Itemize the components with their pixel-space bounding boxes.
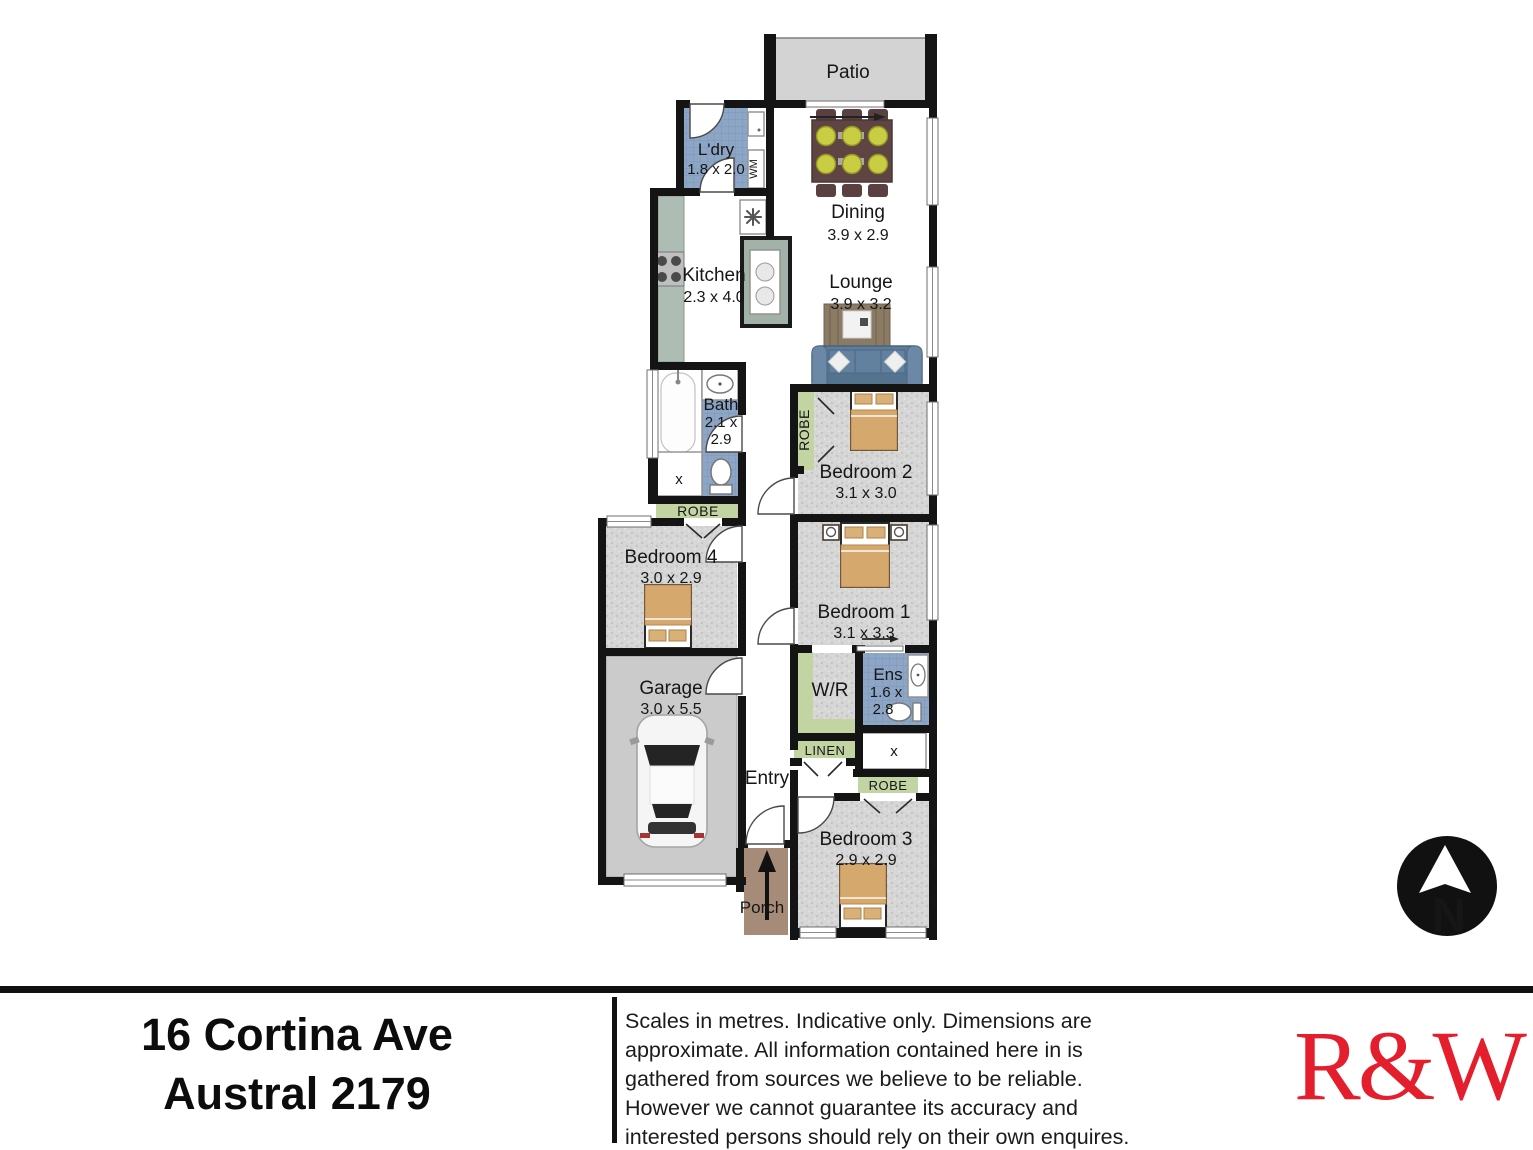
label-robe-bedroom4: ROBE (677, 503, 719, 519)
dims-lounge: 3.9 x 3.2 (830, 296, 891, 313)
disclaimer-line: interested persons should rely on their … (625, 1123, 1129, 1150)
ens-sink-icon (908, 655, 928, 697)
dims-garage: 3.0 x 5.5 (640, 701, 701, 718)
label-patio: Patio (826, 62, 869, 83)
dims-bedroom1: 3.1 x 3.3 (833, 625, 894, 642)
dims-ldry: 1.8 x 2.0 (687, 161, 745, 178)
window-bath (647, 370, 658, 458)
dims-bath-2: 2.9 (711, 431, 732, 448)
patio-wall-left (764, 34, 776, 104)
bed-icon-bedroom2 (851, 390, 897, 450)
floor-plan: WM x (0, 0, 1533, 1150)
address-line2: Austral 2179 (82, 1064, 512, 1123)
disclaimer-line: However we cannot guarantee its accuracy… (625, 1094, 1129, 1123)
label-dining: Dining (831, 202, 885, 223)
label-ldry: L'dry (698, 140, 735, 159)
bed-icon-bedroom3 (840, 864, 886, 928)
ens-shower-label: x (890, 743, 898, 760)
label-lounge: Lounge (829, 272, 892, 293)
footer-divider (612, 997, 617, 1143)
island-bench (742, 238, 790, 326)
rw-agency-logo: R&W (1294, 1011, 1524, 1121)
north-letter: N (1432, 888, 1466, 941)
bath-shower-icon: x (656, 452, 702, 496)
car-icon (629, 715, 715, 847)
label-wr: W/R (812, 680, 849, 701)
label-bedroom3: Bedroom 3 (820, 829, 913, 850)
dims-bath-1: 2.1 x (705, 414, 738, 431)
stove-icon (654, 252, 684, 286)
disclaimer-line: Scales in metres. Indicative only. Dimen… (625, 1007, 1129, 1036)
washing-machine-label: WM (748, 159, 760, 179)
label-bath: Bath (704, 395, 739, 414)
window-bedroom1 (927, 525, 938, 620)
dims-bedroom4: 3.0 x 2.9 (640, 570, 701, 587)
label-robe-bedroom2: ROBE (796, 409, 812, 451)
label-ens: Ens (873, 665, 902, 684)
dims-ens-1: 1.6 x (870, 684, 903, 701)
window-bedroom4 (607, 516, 651, 527)
sofa-icon (812, 346, 922, 390)
footer: 16 Cortina Ave Austral 2179 Scales in me… (0, 986, 1533, 1150)
label-entry: Entry (745, 768, 790, 789)
patio-wall-right (925, 34, 937, 104)
bathtub-icon (654, 366, 702, 460)
label-bedroom4: Bedroom 4 (625, 547, 718, 568)
label-bedroom2: Bedroom 2 (820, 462, 913, 483)
address-line1: 16 Cortina Ave (82, 1005, 512, 1064)
window-bedroom3-right (886, 927, 926, 938)
window-lounge (927, 267, 938, 357)
label-bedroom1: Bedroom 1 (818, 602, 911, 623)
property-address: 16 Cortina Ave Austral 2179 (82, 1005, 512, 1123)
label-garage: Garage (639, 678, 702, 699)
disclaimer-text: Scales in metres. Indicative only. Dimen… (625, 1007, 1129, 1150)
garage-door-opening (624, 874, 726, 886)
fridge-icon (740, 200, 766, 234)
bath-toilet-icon (710, 459, 732, 494)
dims-kitchen: 2.3 x 4.0 (683, 289, 744, 306)
laundry-tub-icon (748, 112, 764, 136)
disclaimer-line: approximate. All information contained h… (625, 1036, 1129, 1065)
ens-shower-icon: x (862, 733, 926, 769)
window-dining (927, 118, 938, 205)
floor-plan-page: WM x (0, 0, 1533, 1150)
label-robe-bedroom3: ROBE (869, 778, 908, 793)
dims-ens-2: 2.8 (873, 701, 894, 718)
label-linen: LINEN (805, 743, 846, 758)
bath-shower-label: x (675, 471, 683, 488)
laundry-fixtures: WM (748, 108, 765, 196)
label-kitchen: Kitchen (682, 265, 745, 286)
dims-bedroom2: 3.1 x 3.0 (835, 485, 896, 502)
disclaimer-line: gathered from sources we believe to be r… (625, 1065, 1129, 1094)
bed-icon-bedroom4 (645, 585, 691, 648)
window-bedroom3-left (800, 927, 836, 938)
dims-dining: 3.9 x 2.9 (827, 227, 888, 244)
label-porch: Porch (740, 898, 784, 917)
window-bedroom2 (927, 402, 938, 495)
dims-bedroom3: 2.9 x 2.9 (835, 852, 896, 869)
walkin-robe-shelf-bottom (798, 719, 858, 733)
north-compass-icon: N (1397, 836, 1497, 941)
